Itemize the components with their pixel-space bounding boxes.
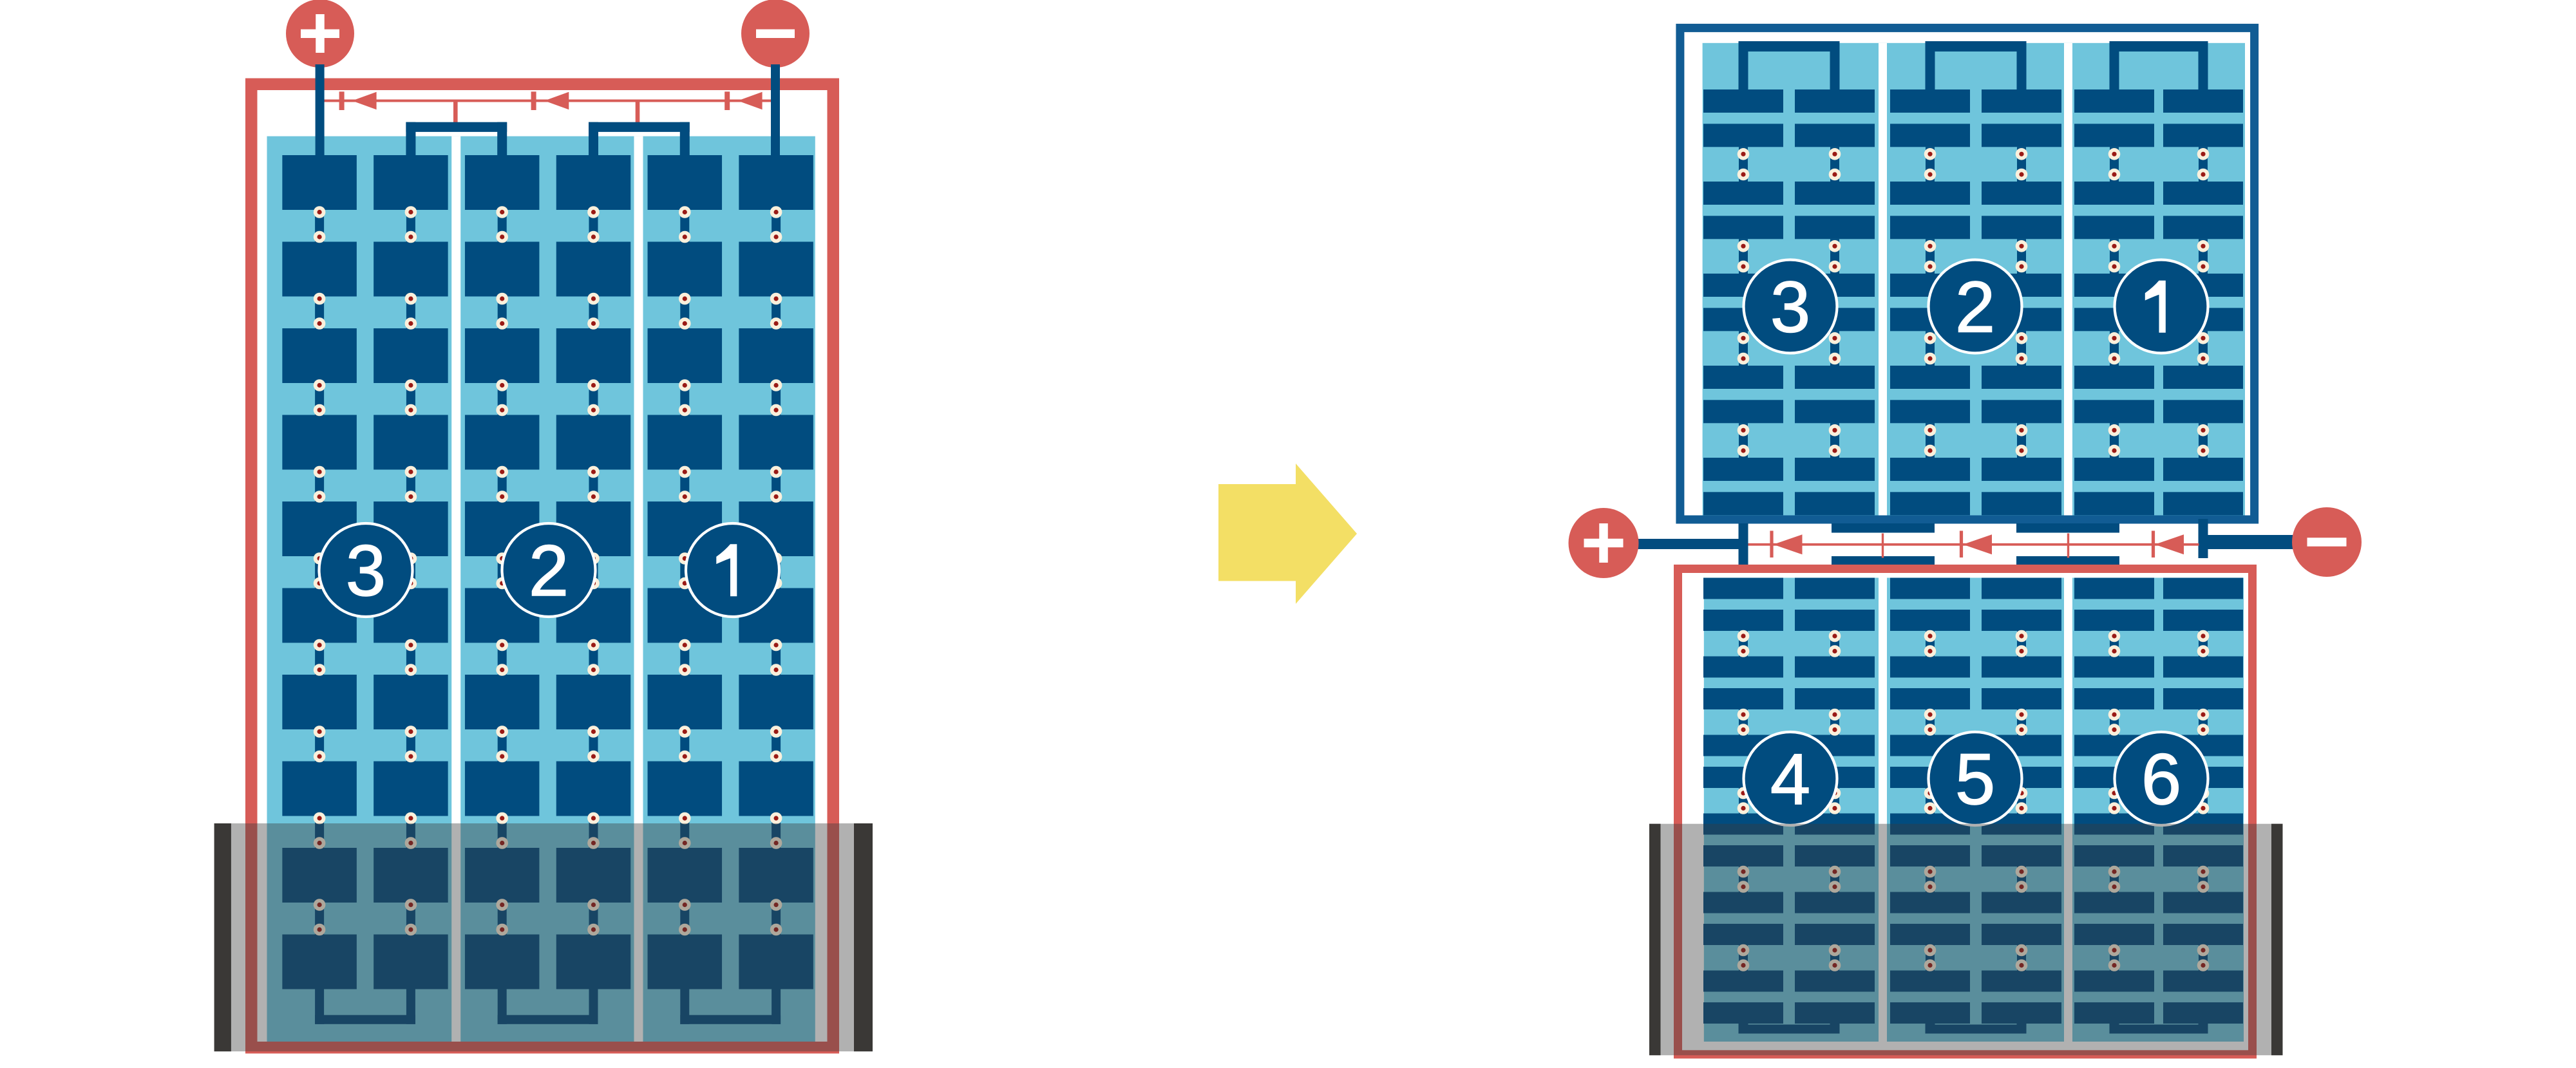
svg-text:6: 6 bbox=[2141, 739, 2181, 820]
svg-text:2: 2 bbox=[1955, 267, 1995, 348]
svg-text:4: 4 bbox=[1770, 739, 1810, 820]
svg-text:3: 3 bbox=[1770, 267, 1810, 348]
svg-text:5: 5 bbox=[1955, 739, 1995, 820]
svg-text:2: 2 bbox=[529, 530, 569, 611]
svg-text:3: 3 bbox=[346, 530, 386, 611]
